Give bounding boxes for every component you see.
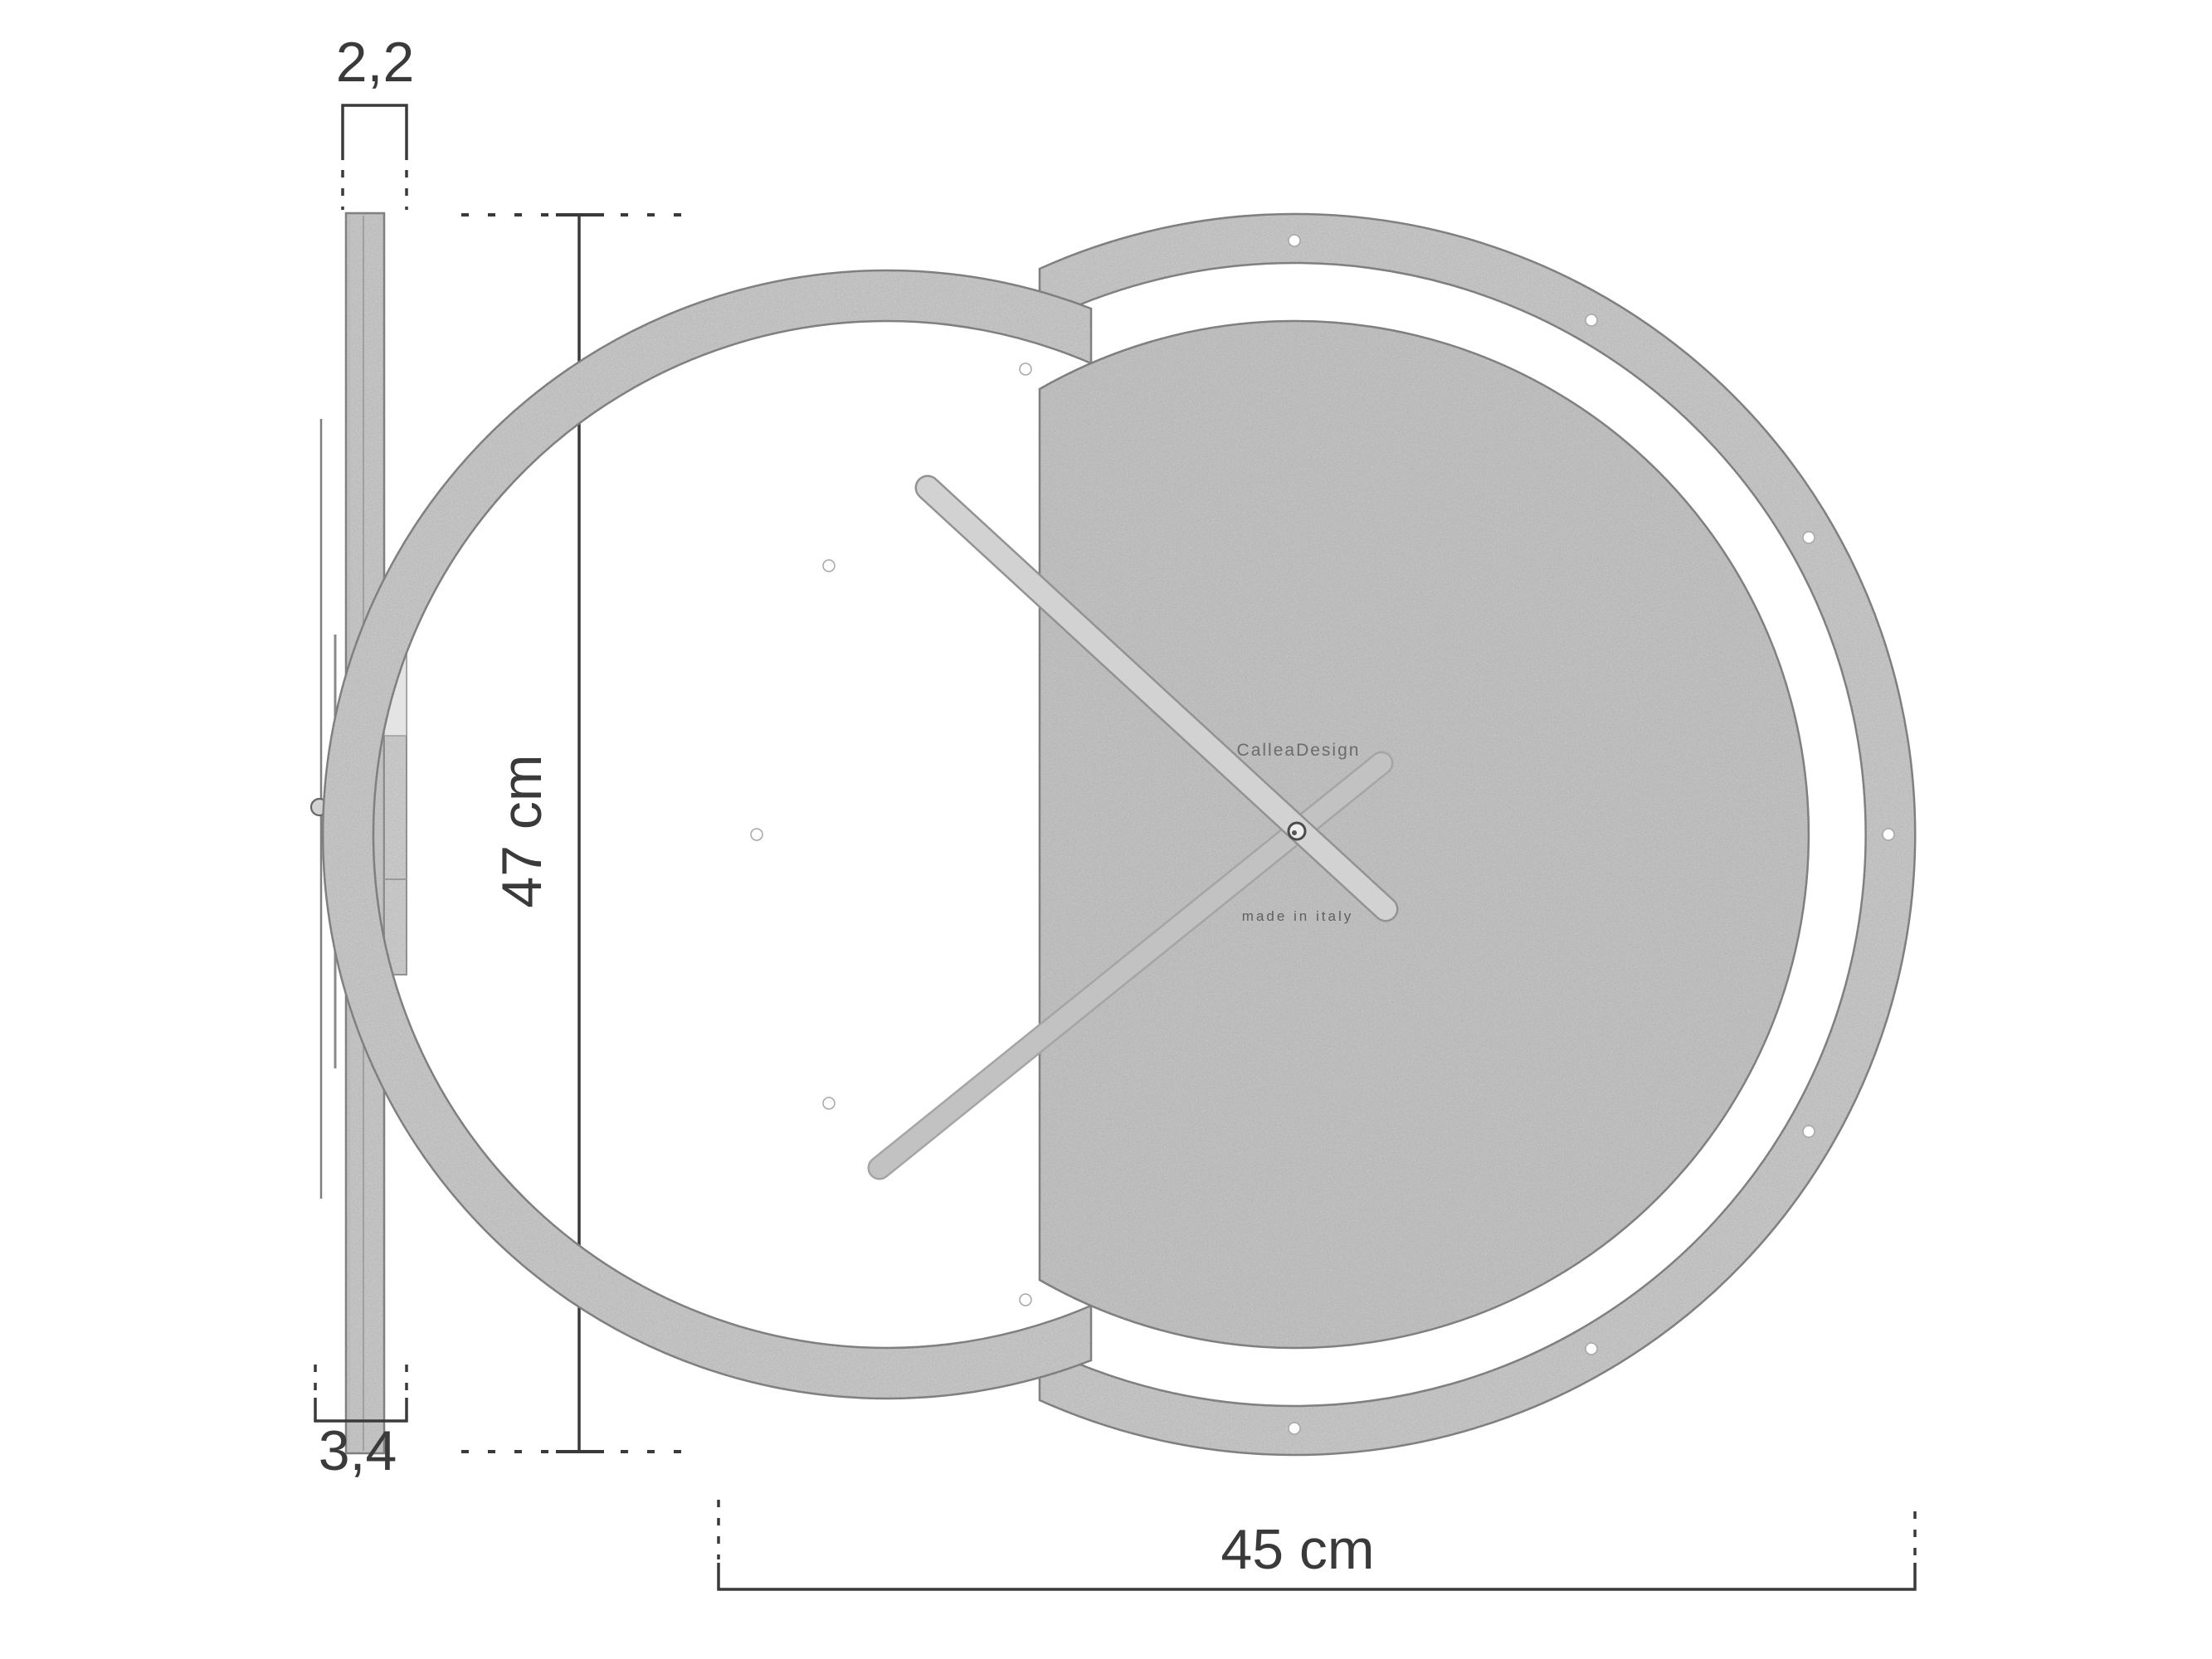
clock-face-disc: [1040, 321, 1809, 1348]
hole-1h: [1586, 314, 1597, 326]
width-label: 45 cm: [1220, 1518, 1374, 1581]
center-pin-dot: [1292, 830, 1297, 835]
hole-9h: [751, 829, 763, 840]
dimension-width: 45 cm: [719, 1500, 1915, 1589]
hole-4h: [1803, 1126, 1815, 1137]
hole-6h: [1289, 1423, 1300, 1434]
side-depth-label: 3,4: [319, 1419, 397, 1482]
made-in-text: made in italy: [1242, 908, 1353, 924]
drawing-page: 2,2 3,4 47 cm: [0, 0, 2212, 1659]
side-thickness-label: 2,2: [336, 31, 415, 94]
center-pin: [1289, 823, 1305, 839]
hole-8h: [823, 1097, 835, 1109]
hole-10h: [823, 560, 835, 572]
hole-2h: [1803, 532, 1815, 543]
clock-left-arc-band: [323, 270, 1091, 1399]
brand-text: CalleaDesign: [1237, 741, 1361, 760]
hole-5h: [1586, 1343, 1597, 1355]
dimension-side-thickness: 2,2: [336, 31, 415, 210]
hole-12h: [1289, 235, 1300, 246]
hole-3h: [1883, 829, 1894, 840]
hole-7h: [1020, 1294, 1031, 1306]
center-pin-cap: [1289, 823, 1305, 839]
hole-11h: [1020, 363, 1031, 375]
side-thickness-bracket: [343, 105, 407, 160]
front-view: CalleaDesign made in italy: [323, 214, 1915, 1455]
height-label: 47 cm: [490, 754, 553, 907]
clock-drawing-canvas: 2,2 3,4 47 cm: [0, 0, 2212, 1659]
